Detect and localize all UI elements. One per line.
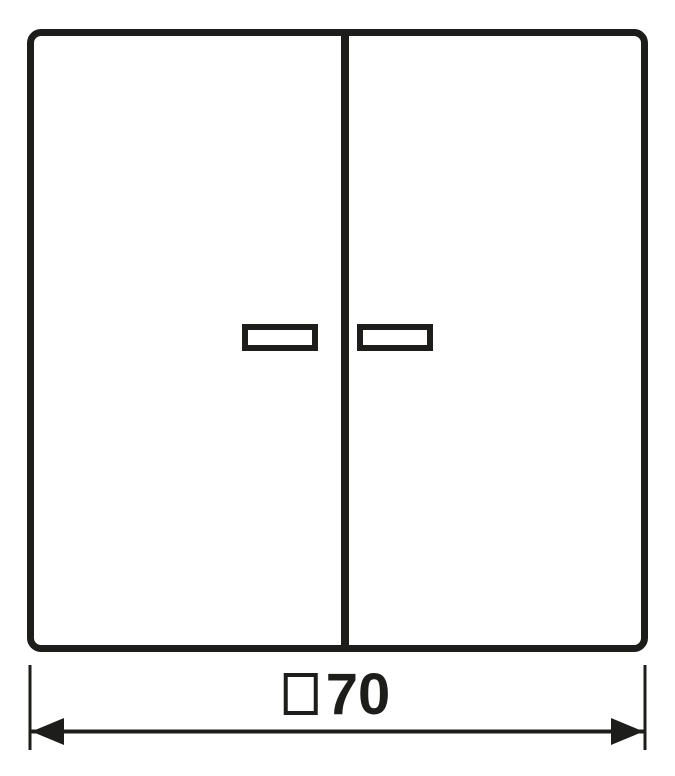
switch-plate bbox=[27, 29, 648, 652]
arrowhead-left-icon bbox=[32, 718, 65, 745]
right-rocker-window bbox=[357, 324, 433, 351]
dimension-label: 70 bbox=[284, 671, 391, 719]
rocker-divider bbox=[341, 36, 349, 645]
dimension-value: 70 bbox=[326, 671, 391, 719]
left-rocker-window bbox=[242, 324, 318, 351]
dimension-drawing: 70 bbox=[0, 0, 675, 776]
arrowhead-right-icon bbox=[611, 718, 644, 745]
square-symbol-icon bbox=[284, 673, 318, 715]
